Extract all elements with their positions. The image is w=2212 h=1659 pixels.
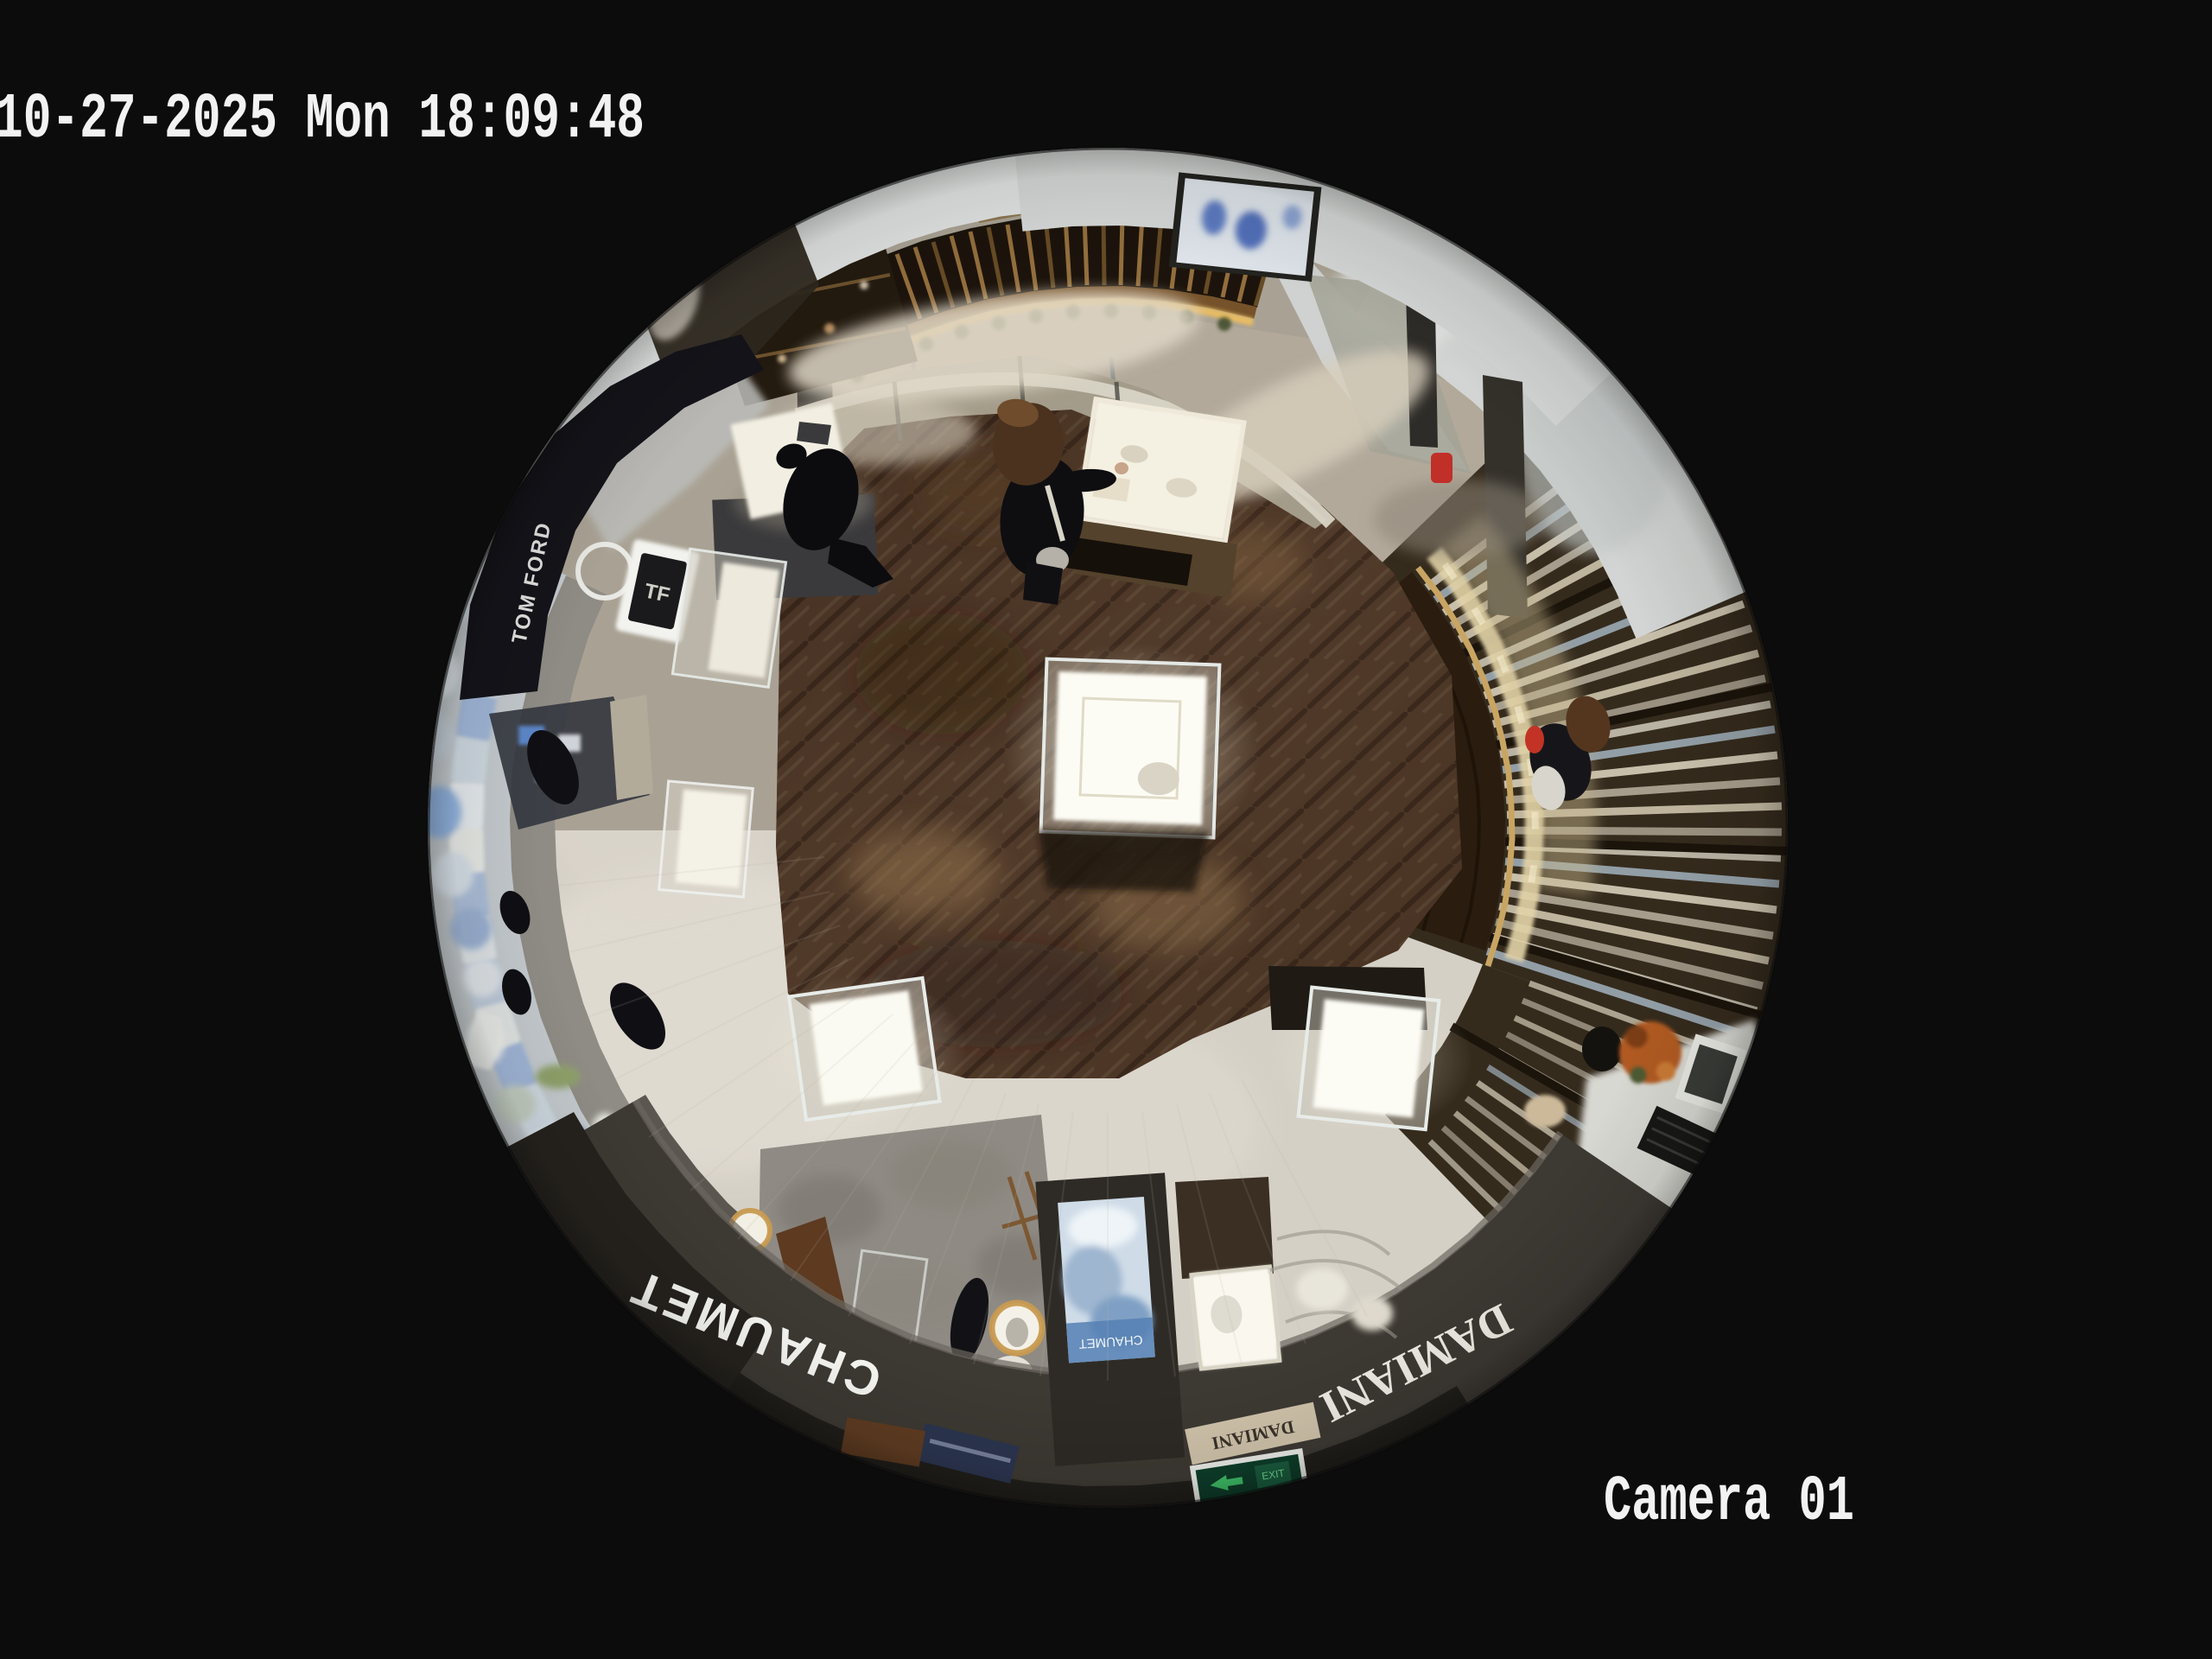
svg-text:10-27-2025 Mon 18:09:48: 10-27-2025 Mon 18:09:48 xyxy=(0,84,645,156)
svg-text:Camera 01: Camera 01 xyxy=(1604,1466,1854,1539)
